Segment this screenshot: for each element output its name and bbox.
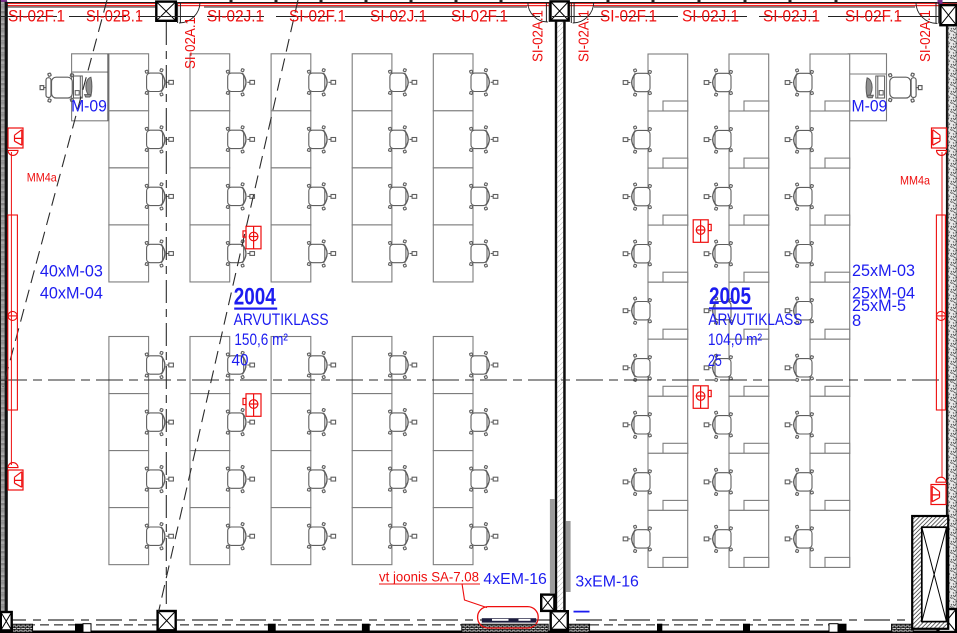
svg-text:SI-02A.1: SI-02A.1 xyxy=(917,10,934,62)
svg-text:SI-02F.1: SI-02F.1 xyxy=(451,7,508,26)
svg-text:SI-02J.1: SI-02J.1 xyxy=(763,7,820,26)
svg-text:vt joonis SA-7.08: vt joonis SA-7.08 xyxy=(379,569,479,585)
svg-text:ARVUTIKLASS: ARVUTIKLASS xyxy=(708,311,802,329)
svg-text:SI-02A.1: SI-02A.1 xyxy=(182,17,199,69)
svg-text:M-09: M-09 xyxy=(71,96,107,115)
svg-text:SI-02A.1: SI-02A.1 xyxy=(576,10,593,62)
svg-text:SI-02F.1: SI-02F.1 xyxy=(289,7,346,26)
svg-text:104,0 m²: 104,0 m² xyxy=(708,331,763,349)
svg-text:25: 25 xyxy=(708,352,722,370)
svg-text:MM4a: MM4a xyxy=(900,174,930,188)
svg-text:2004: 2004 xyxy=(234,283,277,310)
svg-text:3xEM-16: 3xEM-16 xyxy=(575,574,639,591)
svg-text:150,6 m²: 150,6 m² xyxy=(234,331,288,349)
svg-text:2005: 2005 xyxy=(709,283,751,310)
svg-text:SI-02J.1: SI-02J.1 xyxy=(370,7,427,26)
svg-text:8: 8 xyxy=(852,312,861,330)
svg-text:25xM-03: 25xM-03 xyxy=(852,262,915,280)
svg-text:SI-02F.1: SI-02F.1 xyxy=(845,7,902,26)
svg-text:4xEM-16: 4xEM-16 xyxy=(483,571,547,588)
svg-text:SI-02F.1: SI-02F.1 xyxy=(8,7,65,26)
svg-text:SI-02A.1: SI-02A.1 xyxy=(529,10,546,62)
svg-text:SI-02F.1: SI-02F.1 xyxy=(600,7,657,26)
svg-text:SI-02J.1: SI-02J.1 xyxy=(682,7,739,26)
svg-text:40: 40 xyxy=(232,351,249,369)
svg-text:M-09: M-09 xyxy=(852,97,888,116)
svg-text:SI-02B.1: SI-02B.1 xyxy=(86,7,143,26)
svg-text:40xM-04: 40xM-04 xyxy=(40,285,103,303)
svg-text:MM4a: MM4a xyxy=(27,170,57,184)
svg-text:SI-02J.1: SI-02J.1 xyxy=(207,7,264,26)
svg-text:ARVUTIKLASS: ARVUTIKLASS xyxy=(234,311,329,329)
svg-text:40xM-03: 40xM-03 xyxy=(40,262,103,280)
